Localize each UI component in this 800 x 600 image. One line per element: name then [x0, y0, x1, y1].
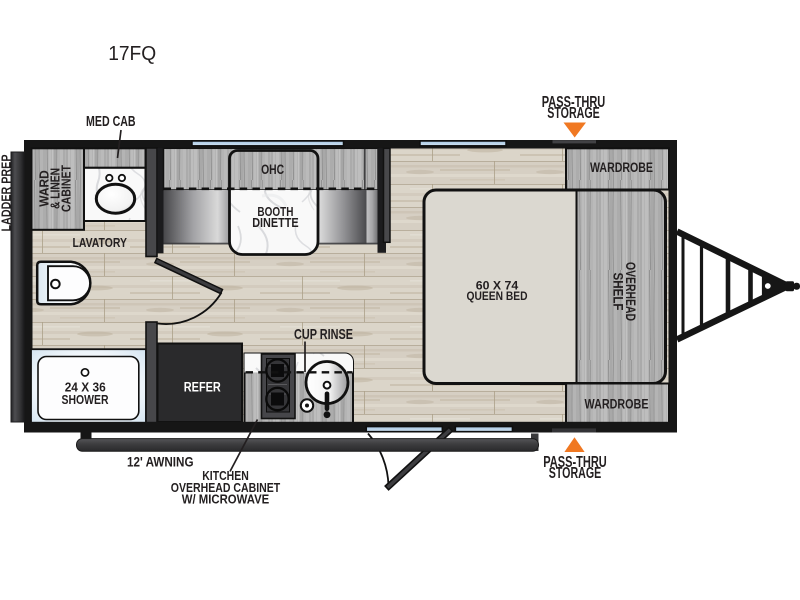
svg-text:12' AWNING: 12' AWNING: [127, 455, 194, 470]
svg-text:WARDROBE: WARDROBE: [590, 160, 653, 175]
svg-text:STORAGE: STORAGE: [547, 105, 600, 122]
svg-text:SHELF: SHELF: [611, 273, 626, 311]
svg-text:CUP RINSE: CUP RINSE: [294, 326, 353, 343]
svg-text:LAVATORY: LAVATORY: [72, 235, 127, 250]
svg-text:STORAGE: STORAGE: [549, 465, 602, 482]
svg-text:SHOWER: SHOWER: [62, 393, 109, 407]
svg-text:CABINET: CABINET: [59, 165, 74, 212]
svg-text:OHC: OHC: [261, 161, 284, 177]
svg-text:W/ MICROWAVE: W/ MICROWAVE: [182, 492, 270, 507]
svg-text:REFER: REFER: [184, 380, 221, 395]
svg-text:17FQ: 17FQ: [108, 43, 156, 65]
svg-text:QUEEN BED: QUEEN BED: [467, 289, 528, 303]
svg-text:LADDER PREP: LADDER PREP: [0, 154, 14, 231]
svg-text:WARDROBE: WARDROBE: [585, 397, 649, 412]
svg-text:DINETTE: DINETTE: [252, 216, 298, 230]
svg-text:MED CAB: MED CAB: [86, 113, 136, 130]
